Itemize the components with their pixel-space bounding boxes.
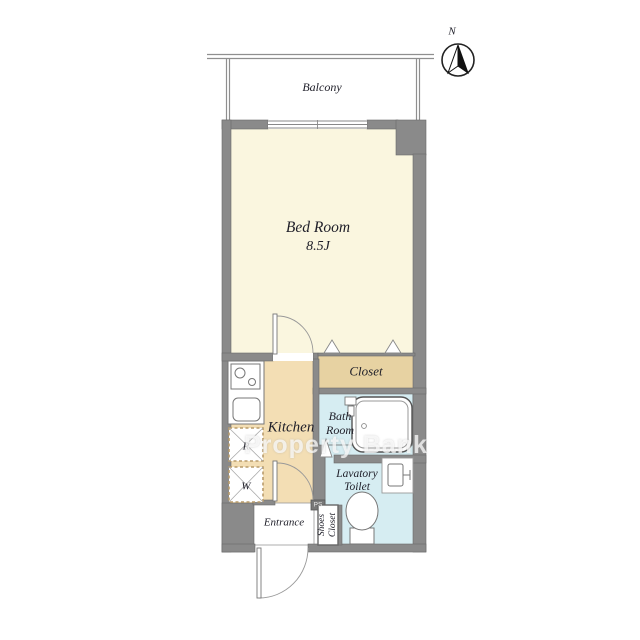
floor-plan: N Balcony Bed Room 8.5J Closet Kitchen B… bbox=[0, 0, 640, 640]
washer-label: W bbox=[241, 481, 250, 494]
bedroom-label: Bed Room bbox=[286, 219, 350, 237]
entrance-label: Entrance bbox=[264, 517, 304, 530]
stove-icon bbox=[231, 364, 260, 389]
kitchen-sink-icon bbox=[233, 398, 260, 421]
bedroom-size-label: 8.5J bbox=[306, 239, 330, 255]
pipe-space-label: PS bbox=[314, 502, 323, 509]
watermark: Property Bank bbox=[244, 431, 428, 460]
north-label: N bbox=[448, 26, 455, 39]
shoes-closet-label: Shoes Closet bbox=[317, 505, 339, 545]
north-arrow-icon bbox=[442, 44, 474, 76]
toilet-icon bbox=[346, 492, 378, 544]
entrance-door-icon bbox=[257, 548, 308, 598]
closet-label: Closet bbox=[349, 365, 382, 380]
lavatory-label: Lavatory Toilet bbox=[326, 468, 388, 494]
balcony-label: Balcony bbox=[302, 81, 341, 95]
window-icon bbox=[268, 120, 367, 129]
